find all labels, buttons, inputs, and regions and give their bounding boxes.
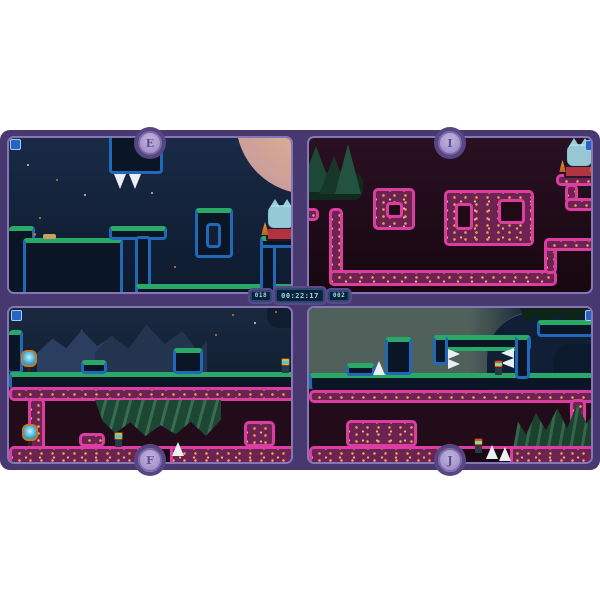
viewport-player-f[interactable]: [7, 306, 293, 464]
left-counter: 018: [250, 290, 272, 302]
ghost-cat-sprite: [268, 205, 293, 228]
star-icon: [39, 217, 41, 219]
wall-spike-icon: [448, 349, 460, 359]
terrain-wall: [515, 335, 530, 379]
panel-badge-label: E: [146, 137, 154, 150]
star-icon: [56, 179, 58, 181]
terrain-step: [346, 363, 375, 376]
player-sprite-red: [493, 360, 504, 375]
player-sprite-red: [473, 438, 484, 453]
strip-sky: [309, 308, 593, 389]
tube-ceiling: [309, 390, 593, 403]
viewport-player-i[interactable]: [307, 136, 593, 294]
right-counter: 002: [328, 290, 350, 302]
player-sprite: [113, 432, 124, 447]
panel-badge-i: I: [438, 131, 462, 155]
item-loaf: [43, 234, 56, 239]
floor-spike-icon: [486, 445, 498, 459]
ring-hole: [206, 223, 221, 248]
star-icon: [232, 314, 234, 316]
terrain-wall-right: [260, 240, 276, 294]
panel-badge-label: I: [447, 137, 452, 150]
floor-spike-icon: [499, 447, 511, 461]
checkpoint-mirror: [21, 350, 37, 372]
star-icon: [275, 311, 277, 313]
viewport-player-e[interactable]: [7, 136, 293, 294]
connection-indicator-icon: [10, 139, 21, 150]
item-dot: [33, 233, 36, 236]
tube-floor: [329, 270, 557, 286]
tube-block-tall: [244, 421, 275, 447]
game-frame: E I F J 018 00:22:17 002: [0, 130, 600, 470]
panel-badge-label: J: [447, 454, 452, 467]
panel-badge-label: F: [146, 454, 154, 467]
match-timer: 00:22:17: [275, 288, 325, 303]
dark-cloud: [267, 306, 293, 328]
tube-block: [79, 433, 105, 447]
star-icon: [174, 266, 176, 268]
connection-indicator-icon: [585, 140, 593, 151]
ring-hole: [386, 202, 403, 218]
tube-ledge: [565, 198, 593, 211]
star-icon: [27, 164, 29, 166]
wall-spike-icon: [501, 348, 514, 358]
star-icon: [254, 322, 256, 324]
hud-center: 018 00:22:17 002: [250, 288, 350, 303]
panel-badge-j: J: [438, 448, 462, 472]
star-icon: [84, 194, 86, 196]
ring-hole: [455, 203, 473, 230]
tube-ceiling: [9, 387, 293, 401]
panel-badge-f: F: [138, 448, 162, 472]
terrain-pedestal: [81, 360, 107, 374]
bed-goal: [266, 227, 293, 241]
connection-indicator-icon: [11, 310, 22, 321]
ceiling-spike-icon: [114, 174, 126, 189]
ring-platform: [195, 208, 233, 258]
bed-goal: [564, 165, 593, 178]
panel-badge-e: E: [138, 131, 162, 155]
viewport-player-j[interactable]: [307, 306, 593, 464]
floor-spike-icon: [172, 442, 184, 456]
checkpoint-mirror: [22, 424, 38, 446]
moon-icon: [236, 136, 293, 194]
strip-sky: [9, 308, 293, 389]
traffic-cone-icon: [291, 222, 293, 235]
floor-spike-icon: [373, 361, 385, 375]
connection-indicator-icon: [585, 310, 593, 321]
terrain-pillar: [385, 337, 412, 375]
terrain-block: [173, 348, 203, 374]
terrain-bar-stub: [433, 335, 448, 365]
player-sprite: [280, 358, 291, 373]
wall-spike-icon: [448, 359, 460, 369]
terrain-step-lower: [23, 238, 123, 294]
star-icon: [215, 334, 217, 336]
terrain-ledge-right: [537, 320, 593, 337]
tube-stub-left: [307, 208, 319, 221]
tube-plateau: [346, 420, 417, 447]
tube-ledge-right: [544, 238, 593, 251]
ring-hole: [498, 199, 525, 224]
app-screen: E I F J 018 00:22:17 002: [0, 0, 600, 600]
hanging-forest: [95, 400, 221, 436]
ceiling-spike-icon: [129, 174, 141, 189]
tube-ring-small: [373, 188, 415, 230]
star-icon: [151, 192, 153, 194]
tube-ring-large: [444, 190, 534, 246]
